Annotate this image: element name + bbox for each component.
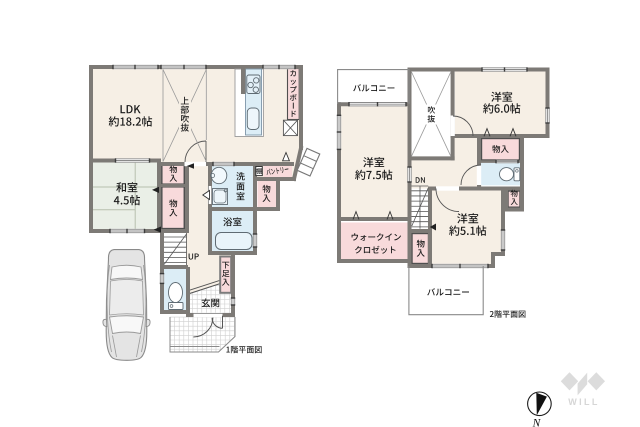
svg-text:N: N bbox=[532, 418, 542, 427]
svg-text:WILL: WILL bbox=[568, 397, 600, 407]
